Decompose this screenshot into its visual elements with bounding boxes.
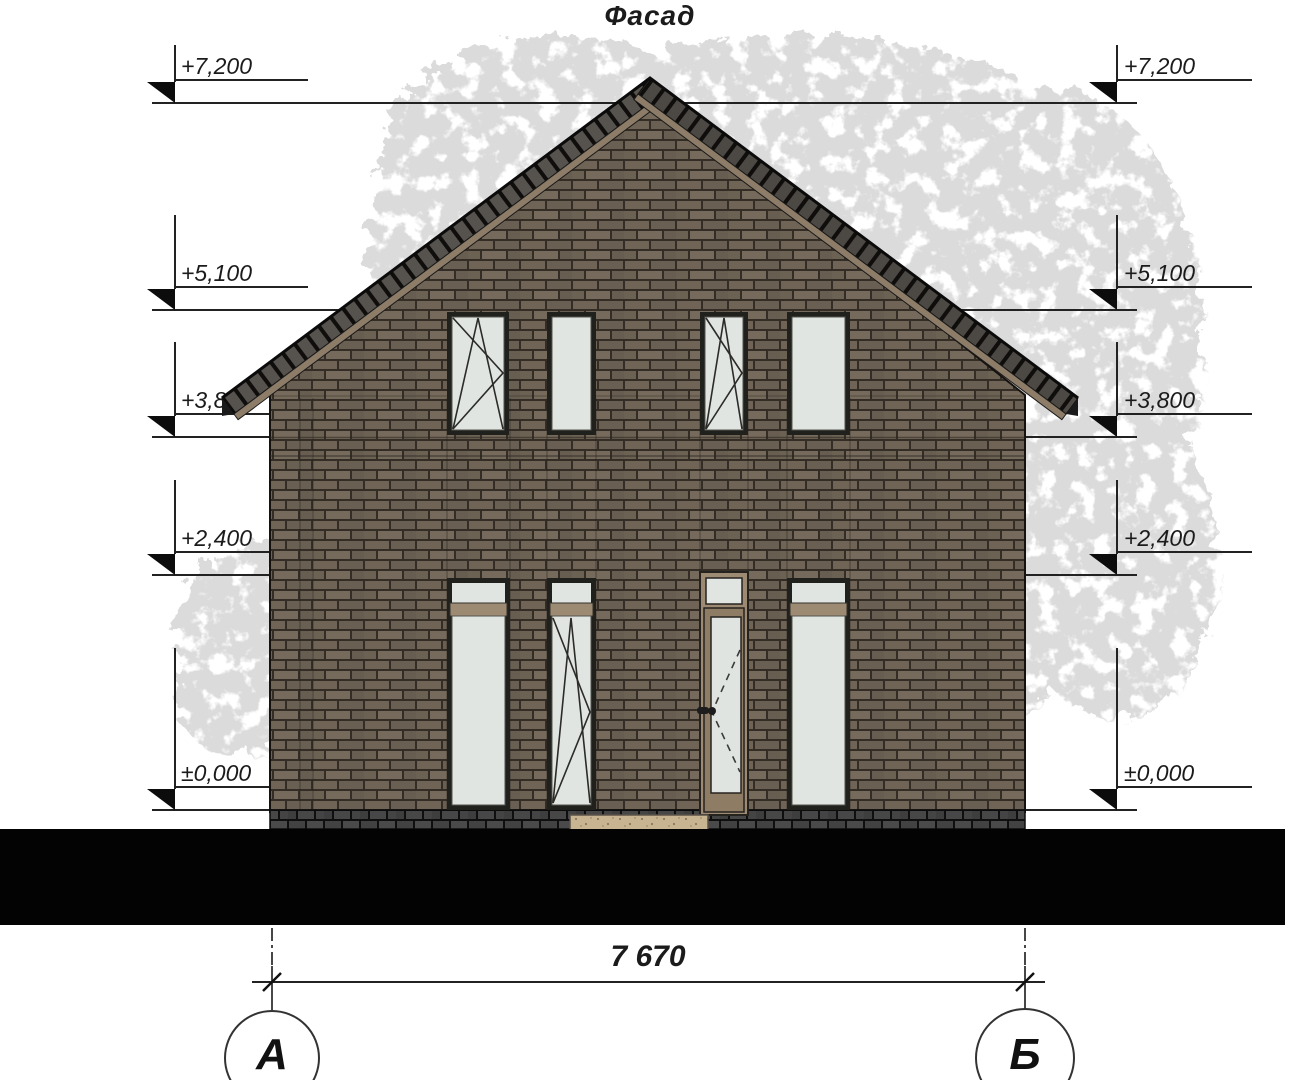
window-2f-1 <box>447 312 509 435</box>
roof-fascia-right <box>634 94 1066 420</box>
ground-band <box>0 829 1285 925</box>
window-2f-3 <box>700 312 748 435</box>
elevation-label-right-7200: +7,200 <box>1124 53 1254 79</box>
interfloor-band <box>270 396 1025 456</box>
overall-width-dimension: 7 670 <box>548 940 748 974</box>
tilt-turn-symbol <box>553 618 590 803</box>
door-handle-icon <box>697 707 716 715</box>
drawing-title: Фасад <box>495 0 805 32</box>
elevation-triangle-icon <box>1089 82 1117 810</box>
roof-tiles-left <box>222 78 662 414</box>
door-step <box>570 815 708 830</box>
axis-letter-b: Б <box>975 1030 1075 1080</box>
window-2f-4 <box>787 312 850 435</box>
elevation-label-left-2400: +2,400 <box>181 525 307 551</box>
house-facade <box>222 78 1078 830</box>
elevation-label-left-0000: ±0,000 <box>181 760 307 786</box>
dimension-tick-icon <box>263 973 1034 991</box>
door-swing-lines <box>712 650 740 772</box>
facade-drawing-sheet: Фасад +7,200 +5,100 +3,800 +2,400 ±0,000… <box>0 0 1289 1080</box>
entrance-door <box>697 572 748 815</box>
door-glass <box>711 617 741 793</box>
axis-letter-a: А <box>222 1030 322 1080</box>
tilt-turn-symbol <box>706 318 742 429</box>
brick-wall <box>270 97 1025 812</box>
elevation-label-right-3800: +3,800 <box>1124 387 1254 413</box>
elevation-triangle-icon <box>147 82 175 810</box>
elevation-level-lines <box>152 103 1137 810</box>
roof <box>222 78 1078 420</box>
elevation-markers-left <box>147 45 308 810</box>
elevation-label-right-2400: +2,400 <box>1124 525 1254 551</box>
elevation-label-right-0000: ±0,000 <box>1124 760 1254 786</box>
window-1f-3 <box>787 578 850 810</box>
elevation-markers-right <box>1089 45 1252 810</box>
plinth <box>270 810 1025 829</box>
roof-edge <box>222 78 1078 398</box>
tree-canopy <box>177 35 1220 758</box>
door-transom-glass <box>706 578 742 604</box>
window-1f-1 <box>447 578 510 810</box>
roof-fascia-left <box>234 94 666 420</box>
tilt-turn-symbol <box>453 318 503 429</box>
elevation-label-left-5100: +5,100 <box>181 260 307 286</box>
elevation-label-left-7200: +7,200 <box>181 53 307 79</box>
elevation-label-left-3800: +3,800 <box>181 387 307 413</box>
elevation-label-right-5100: +5,100 <box>1124 260 1254 286</box>
door-leaf <box>704 608 744 812</box>
window-1f-2 <box>547 578 596 810</box>
roof-tiles-right <box>638 78 1078 414</box>
window-2f-2 <box>547 312 596 435</box>
